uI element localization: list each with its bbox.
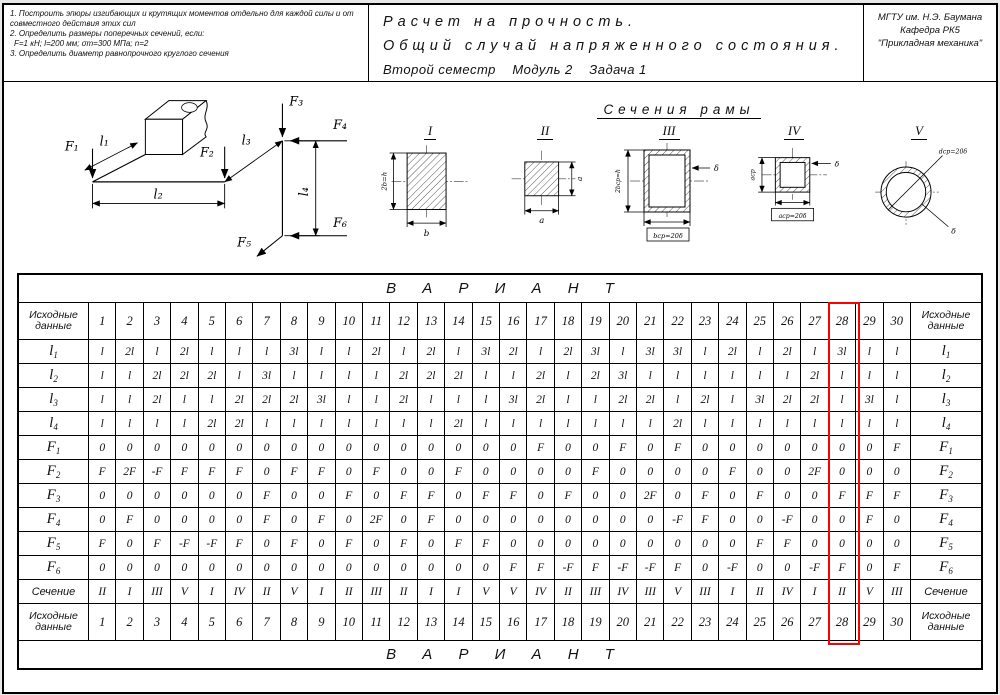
variant-column-header: 6 bbox=[226, 303, 253, 340]
table-cell: l bbox=[856, 364, 883, 388]
table-cell: 0 bbox=[226, 508, 253, 532]
table-cell: F bbox=[390, 532, 417, 556]
table-cell: 0 bbox=[199, 556, 226, 580]
variant-column-header-bottom: 14 bbox=[445, 604, 472, 641]
row-label-left: l4 bbox=[19, 412, 89, 436]
length-l3-label: l₃ bbox=[242, 133, 251, 148]
row-label-left: F5 bbox=[19, 532, 89, 556]
task-formula: F=1 кН; l=200 мм; σт=300 МПа; n=2 bbox=[10, 39, 362, 49]
row-label-right: F4 bbox=[911, 508, 981, 532]
table-cell: l bbox=[692, 340, 719, 364]
section-3-numeral: III bbox=[659, 123, 680, 140]
table-cell: 0 bbox=[747, 460, 774, 484]
table-cell: 0 bbox=[89, 436, 116, 460]
table-cell: III bbox=[637, 580, 664, 604]
table-cell: l bbox=[610, 340, 637, 364]
table-cell: l bbox=[199, 388, 226, 412]
table-cell: 3l bbox=[308, 388, 335, 412]
table-cell: 0 bbox=[527, 508, 554, 532]
table-cell: V bbox=[281, 580, 308, 604]
section-3-dim-left: 2bср=h bbox=[615, 169, 622, 194]
table-cell: F bbox=[418, 484, 445, 508]
row-label-right: l4 bbox=[911, 412, 981, 436]
variant-column-header: 13 bbox=[418, 303, 445, 340]
row-label-left: F2 bbox=[19, 460, 89, 484]
table-cell: F bbox=[500, 556, 527, 580]
table-cell: l bbox=[336, 340, 363, 364]
variant-column-header-bottom: 17 bbox=[527, 604, 554, 641]
table-cell: l bbox=[610, 412, 637, 436]
table-cell: F bbox=[856, 484, 883, 508]
variant-column-header-bottom: 30 bbox=[884, 604, 911, 641]
table-cell: V bbox=[664, 580, 691, 604]
table-cell: III bbox=[884, 580, 911, 604]
table-cell: l bbox=[226, 340, 253, 364]
table-cell: F bbox=[829, 484, 856, 508]
table-cell: l bbox=[719, 388, 746, 412]
table-cell: 0 bbox=[774, 556, 801, 580]
table-cell: 0 bbox=[308, 556, 335, 580]
table-cell: III bbox=[692, 580, 719, 604]
row-label-left: F4 bbox=[19, 508, 89, 532]
table-cell: F bbox=[418, 508, 445, 532]
table-cell: l bbox=[445, 340, 472, 364]
table-cell: 0 bbox=[418, 436, 445, 460]
table-cell: l bbox=[418, 388, 445, 412]
table-cell: 2l bbox=[281, 388, 308, 412]
table-cell: 0 bbox=[527, 532, 554, 556]
variant-column-header-bottom: 13 bbox=[418, 604, 445, 641]
title-line-2: Общий случай напряженного состояния. bbox=[383, 34, 859, 58]
table-cell: 2l bbox=[664, 412, 691, 436]
table-cell: 2l bbox=[500, 340, 527, 364]
table-cell: 0 bbox=[829, 508, 856, 532]
drawing-strip: F₁ F₂ F₃ F₄ F₅ F₆ l₁ l₂ l₃ l₄ Сечения ра… bbox=[4, 82, 996, 271]
variant-column-header: 22 bbox=[664, 303, 691, 340]
table-cell: 3l bbox=[637, 340, 664, 364]
table-cell: l bbox=[418, 412, 445, 436]
table-cell: I bbox=[801, 580, 828, 604]
table-cell: F bbox=[473, 484, 500, 508]
table-cell: l bbox=[500, 412, 527, 436]
table-cell: 0 bbox=[473, 556, 500, 580]
table-cell: 2l bbox=[390, 388, 417, 412]
table-cell: 0 bbox=[500, 436, 527, 460]
table-cell: 0 bbox=[308, 532, 335, 556]
table-cell: 2l bbox=[171, 364, 198, 388]
table-cell: 0 bbox=[418, 460, 445, 484]
table-cell: 0 bbox=[281, 556, 308, 580]
table-cell: 2l bbox=[555, 340, 582, 364]
table-cell: 0 bbox=[555, 436, 582, 460]
table-cell: 3l bbox=[582, 340, 609, 364]
table-cell: F bbox=[719, 460, 746, 484]
force-f6-label: F₆ bbox=[332, 215, 347, 230]
table-cell: I bbox=[116, 580, 143, 604]
table-cell: 0 bbox=[829, 532, 856, 556]
table-cell: 3l bbox=[747, 388, 774, 412]
row-label-right: l1 bbox=[911, 340, 981, 364]
table-cell: l bbox=[144, 340, 171, 364]
table-cell: 2l bbox=[637, 388, 664, 412]
table-cell: 0 bbox=[390, 436, 417, 460]
table-cell: IV bbox=[610, 580, 637, 604]
table-cell: l bbox=[308, 412, 335, 436]
table-cell: l bbox=[856, 340, 883, 364]
table-cell: 0 bbox=[171, 556, 198, 580]
table-cell: l bbox=[856, 412, 883, 436]
table-cell: 0 bbox=[801, 436, 828, 460]
table-cell: l bbox=[582, 412, 609, 436]
variant-column-header-bottom: 21 bbox=[637, 604, 664, 641]
table-cell: II bbox=[336, 580, 363, 604]
table-cell: 0 bbox=[281, 436, 308, 460]
table-cell: 0 bbox=[856, 556, 883, 580]
table-cell: l bbox=[116, 364, 143, 388]
table-cell: 0 bbox=[473, 508, 500, 532]
table-cell: l bbox=[637, 412, 664, 436]
table-cell: 0 bbox=[171, 484, 198, 508]
table-cell: 3l bbox=[664, 340, 691, 364]
table-cell: 0 bbox=[445, 436, 472, 460]
table-cell: l bbox=[527, 412, 554, 436]
table-cell: 2F bbox=[637, 484, 664, 508]
table-cell: l bbox=[829, 388, 856, 412]
row-label-left: Сечение bbox=[19, 580, 89, 604]
table-cell: 2l bbox=[253, 388, 280, 412]
row-label-right: Сечение bbox=[911, 580, 981, 604]
table-cell: l bbox=[171, 412, 198, 436]
variant-column-header: 21 bbox=[637, 303, 664, 340]
variant-column-header-bottom: 29 bbox=[856, 604, 883, 641]
variant-column-header-bottom: 16 bbox=[500, 604, 527, 641]
row-label-left: F3 bbox=[19, 484, 89, 508]
table-cell: l bbox=[89, 364, 116, 388]
table-cell: l bbox=[281, 364, 308, 388]
table-cell: 0 bbox=[363, 532, 390, 556]
table-cell: 0 bbox=[747, 436, 774, 460]
table-cell: 0 bbox=[116, 532, 143, 556]
force-f3-label: F₃ bbox=[288, 94, 303, 109]
table-cell: l bbox=[664, 364, 691, 388]
table-cell: F bbox=[747, 484, 774, 508]
sheet-title: Расчет на прочность. Общий случай напряж… bbox=[369, 5, 864, 81]
table-cell: l bbox=[308, 364, 335, 388]
table-cell: III bbox=[363, 580, 390, 604]
variant-column-header-bottom: 7 bbox=[253, 604, 280, 641]
table-cell: 0 bbox=[637, 532, 664, 556]
table-cell: 0 bbox=[774, 460, 801, 484]
variant-column-header: 28 bbox=[829, 303, 856, 340]
table-cell: -F bbox=[801, 556, 828, 580]
table-cell: 0 bbox=[801, 508, 828, 532]
table-cell: 0 bbox=[692, 556, 719, 580]
table-cell: 0 bbox=[89, 484, 116, 508]
section-3-dim-bottom: bср=20δ bbox=[653, 232, 683, 240]
variant-column-header-bottom: 25 bbox=[747, 604, 774, 641]
table-cell: F bbox=[664, 436, 691, 460]
table-cell: 2l bbox=[171, 340, 198, 364]
table-cell: l bbox=[884, 364, 911, 388]
organization-block: МГТУ им. Н.Э. Баумана Кафедра РК5 "Прикл… bbox=[864, 5, 996, 81]
table-cell: l bbox=[719, 364, 746, 388]
variant-column-header-bottom: 2 bbox=[116, 604, 143, 641]
table-cell: 0 bbox=[582, 532, 609, 556]
table-cell: 2F bbox=[801, 460, 828, 484]
table-cell: 0 bbox=[308, 436, 335, 460]
table-cell: III bbox=[144, 580, 171, 604]
table-cell: 0 bbox=[144, 556, 171, 580]
table-cell: 0 bbox=[390, 508, 417, 532]
section-3-wall-label: δ bbox=[714, 164, 719, 173]
table-cell: F bbox=[226, 460, 253, 484]
table-cell: 0 bbox=[664, 532, 691, 556]
variant-column-header-bottom: 12 bbox=[390, 604, 417, 641]
section-1-dim-left: 2b=h bbox=[381, 172, 389, 192]
table-cell: 0 bbox=[390, 556, 417, 580]
table-cell: 0 bbox=[336, 460, 363, 484]
sections-row: I 2b=h b bbox=[368, 123, 990, 246]
table-cell: F bbox=[884, 436, 911, 460]
sections-panel: Сечения рамы I 2b=h bbox=[368, 82, 996, 271]
table-cell: 0 bbox=[89, 508, 116, 532]
table-cell: F bbox=[692, 508, 719, 532]
section-2-dim-bottom: a bbox=[539, 215, 544, 225]
table-cell: 0 bbox=[692, 460, 719, 484]
table-cell: F bbox=[527, 556, 554, 580]
table-cell: l bbox=[884, 340, 911, 364]
variant-column-header: 15 bbox=[473, 303, 500, 340]
table-cell: 0 bbox=[555, 508, 582, 532]
table-cell: F bbox=[336, 532, 363, 556]
table-cell: F bbox=[281, 532, 308, 556]
variant-column-header-bottom: 26 bbox=[774, 604, 801, 641]
title-line-3: Второй семестр Модуль 2 Задача 1 bbox=[383, 58, 859, 81]
table-cell: 0 bbox=[637, 436, 664, 460]
variant-column-header: 9 bbox=[308, 303, 335, 340]
variant-column-header-bottom: 27 bbox=[801, 604, 828, 641]
table-cell: IV bbox=[226, 580, 253, 604]
table-cell: F bbox=[390, 484, 417, 508]
table-cell: 2l bbox=[226, 388, 253, 412]
corner-header-bottom-left: Исходные данные bbox=[19, 604, 89, 641]
header: 1. Построить эпюры изгибающих и крутящих… bbox=[4, 5, 996, 82]
variant-column-header: 14 bbox=[445, 303, 472, 340]
table-cell: 2l bbox=[418, 364, 445, 388]
table-cell: 0 bbox=[582, 484, 609, 508]
table-cell: 2l bbox=[418, 340, 445, 364]
length-l1-label: l₁ bbox=[100, 134, 109, 149]
section-figure-5: V dср=20δ δ bbox=[854, 123, 984, 246]
table-cell: 0 bbox=[445, 508, 472, 532]
variant-column-header: 17 bbox=[527, 303, 554, 340]
table-cell: l bbox=[89, 388, 116, 412]
frame-diagram: F₁ F₂ F₃ F₄ F₅ F₆ l₁ l₂ l₃ l₄ bbox=[4, 82, 368, 271]
table-cell: l bbox=[336, 364, 363, 388]
variant-column-header: 27 bbox=[801, 303, 828, 340]
table-cell: 2l bbox=[116, 340, 143, 364]
variant-banner-bottom: В А Р И А Н Т bbox=[19, 641, 981, 668]
table-cell: l bbox=[363, 388, 390, 412]
section-1-numeral: I bbox=[424, 123, 436, 140]
corner-header-top-right: Исходные данные bbox=[911, 303, 981, 340]
section-4-dim-left: aср bbox=[749, 169, 756, 180]
section-4-wall-label: δ bbox=[835, 159, 840, 168]
variant-column-header: 3 bbox=[144, 303, 171, 340]
table-cell: 0 bbox=[281, 508, 308, 532]
table-cell: l bbox=[253, 412, 280, 436]
table-cell: 0 bbox=[116, 436, 143, 460]
task-3: 3. Определить диаметр равнопрочного круг… bbox=[10, 49, 362, 59]
table-cell: 0 bbox=[336, 436, 363, 460]
table-cell: 3l bbox=[253, 364, 280, 388]
table-cell: 0 bbox=[363, 436, 390, 460]
table-cell: 0 bbox=[719, 508, 746, 532]
variant-column-header: 4 bbox=[171, 303, 198, 340]
table-cell: 0 bbox=[692, 436, 719, 460]
table-cell: l bbox=[555, 388, 582, 412]
table-cell: 2l bbox=[226, 412, 253, 436]
table-cell: F bbox=[555, 484, 582, 508]
table-cell: 0 bbox=[774, 484, 801, 508]
table-cell: 0 bbox=[281, 484, 308, 508]
table-cell: 2F bbox=[116, 460, 143, 484]
variant-column-header-bottom: 23 bbox=[692, 604, 719, 641]
table-cell: l bbox=[774, 412, 801, 436]
table-cell: l bbox=[226, 364, 253, 388]
corner-header-bottom-right: Исходные данные bbox=[911, 604, 981, 641]
table-cell: 0 bbox=[582, 436, 609, 460]
force-arrows bbox=[93, 104, 348, 257]
table-cell: 0 bbox=[829, 460, 856, 484]
table-cell: 0 bbox=[637, 508, 664, 532]
table-cell: l bbox=[664, 388, 691, 412]
force-f2-label: F₂ bbox=[199, 144, 214, 159]
table-cell: l bbox=[692, 412, 719, 436]
table-cell: l bbox=[390, 412, 417, 436]
section-figure-2: II a a bbox=[491, 123, 599, 242]
table-cell: 0 bbox=[884, 460, 911, 484]
table-cell: 0 bbox=[418, 532, 445, 556]
row-label-right: F1 bbox=[911, 436, 981, 460]
table-cell: 0 bbox=[445, 484, 472, 508]
table-cell: 0 bbox=[692, 532, 719, 556]
table-cell: 0 bbox=[582, 508, 609, 532]
table-cell: F bbox=[336, 484, 363, 508]
table-cell: 0 bbox=[199, 508, 226, 532]
table-cell: F bbox=[582, 556, 609, 580]
table-cell: l bbox=[281, 412, 308, 436]
table-cell: 0 bbox=[116, 484, 143, 508]
table-cell: F bbox=[445, 532, 472, 556]
section-1-svg: 2b=h b bbox=[374, 142, 486, 242]
frame-members bbox=[93, 141, 283, 236]
table-cell: F bbox=[747, 532, 774, 556]
variant-column-header: 18 bbox=[555, 303, 582, 340]
table-cell: l bbox=[144, 412, 171, 436]
table-cell: -F bbox=[610, 556, 637, 580]
table-cell: 0 bbox=[856, 436, 883, 460]
variant-column-header-bottom: 11 bbox=[363, 604, 390, 641]
table-cell: 3l bbox=[856, 388, 883, 412]
table-cell: l bbox=[555, 412, 582, 436]
row-label-left: F1 bbox=[19, 436, 89, 460]
variant-column-header-bottom: 9 bbox=[308, 604, 335, 641]
row-label-right: l2 bbox=[911, 364, 981, 388]
table-cell: 2l bbox=[774, 388, 801, 412]
table-cell: 0 bbox=[144, 436, 171, 460]
section-3-svg: 2bср=h δ bср=20δ bbox=[604, 142, 734, 246]
table-cell: F bbox=[884, 556, 911, 580]
table-cell: 0 bbox=[253, 556, 280, 580]
variant-column-header: 2 bbox=[116, 303, 143, 340]
row-label-left: l3 bbox=[19, 388, 89, 412]
section-1-dim-bottom: b bbox=[424, 229, 430, 239]
row-label-left: l2 bbox=[19, 364, 89, 388]
table-cell: 0 bbox=[747, 556, 774, 580]
table-cell: 0 bbox=[473, 460, 500, 484]
table-cell: l bbox=[473, 388, 500, 412]
table-cell: 0 bbox=[171, 508, 198, 532]
table-cell: I bbox=[719, 580, 746, 604]
variant-column-header: 10 bbox=[336, 303, 363, 340]
task-list: 1. Построить эпюры изгибающих и крутящих… bbox=[4, 5, 369, 81]
table-cell: F bbox=[610, 436, 637, 460]
variant-column-header-bottom: 18 bbox=[555, 604, 582, 641]
table-cell: 0 bbox=[747, 508, 774, 532]
variant-column-header-bottom: 24 bbox=[719, 604, 746, 641]
table-cell: l bbox=[363, 364, 390, 388]
table-cell: l bbox=[253, 340, 280, 364]
table-cell: l bbox=[637, 364, 664, 388]
table-cell: 0 bbox=[527, 460, 554, 484]
variant-column-header: 26 bbox=[774, 303, 801, 340]
table-cell: F bbox=[692, 484, 719, 508]
table-cell: 0 bbox=[336, 508, 363, 532]
variant-banner-top: В А Р И А Н Т bbox=[19, 275, 981, 303]
table-cell: 0 bbox=[199, 436, 226, 460]
table-cell: l bbox=[473, 364, 500, 388]
table-cell: 0 bbox=[171, 436, 198, 460]
variant-column-header-bottom: 4 bbox=[171, 604, 198, 641]
variant-column-header: 11 bbox=[363, 303, 390, 340]
table-cell: F bbox=[774, 532, 801, 556]
table-cell: I bbox=[418, 580, 445, 604]
length-l4-label: l₄ bbox=[296, 187, 311, 196]
table-cell: l bbox=[336, 412, 363, 436]
table-cell: 0 bbox=[610, 460, 637, 484]
table-cell: 0 bbox=[336, 556, 363, 580]
table-cell: 0 bbox=[664, 484, 691, 508]
table-cell: l bbox=[336, 388, 363, 412]
table-cell: 2l bbox=[801, 364, 828, 388]
table-cell: 2l bbox=[363, 340, 390, 364]
section-2-dim-right: a bbox=[575, 177, 584, 181]
table-cell: F bbox=[144, 532, 171, 556]
table-cell: 3l bbox=[500, 388, 527, 412]
row-label-right: F6 bbox=[911, 556, 981, 580]
row-label-left: F6 bbox=[19, 556, 89, 580]
org-line-1: МГТУ им. Н.Э. Баумана bbox=[864, 11, 996, 24]
variant-column-header-bottom: 20 bbox=[610, 604, 637, 641]
table-cell: F bbox=[116, 508, 143, 532]
variant-column-header: 1 bbox=[89, 303, 116, 340]
table-cell: I bbox=[445, 580, 472, 604]
table-cell: F bbox=[89, 460, 116, 484]
table-cell: l bbox=[473, 412, 500, 436]
table-cell: 0 bbox=[884, 508, 911, 532]
table-cell: F bbox=[884, 484, 911, 508]
